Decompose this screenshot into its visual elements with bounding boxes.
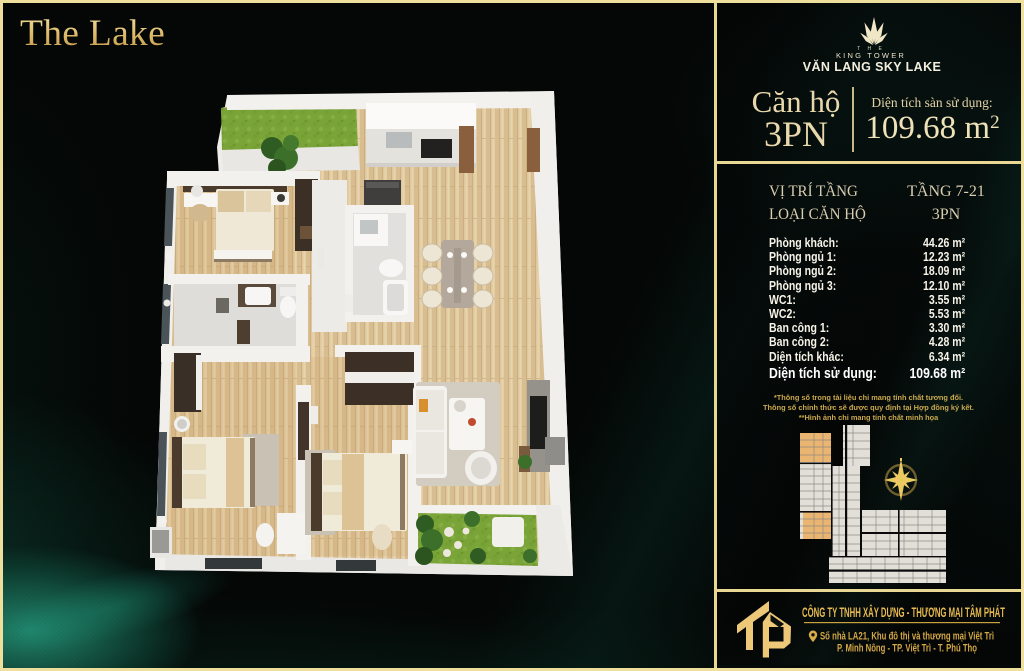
svg-text:Số nhà LA21, Khu đô thị và thư: Số nhà LA21, Khu đô thị và thương mại Vi… <box>820 631 994 643</box>
svg-text:CÔNG TY TNHH XÂY DỰNG - THƯƠNG: CÔNG TY TNHH XÂY DỰNG - THƯƠNG MẠI TÂM P… <box>802 605 1005 620</box>
svg-text:P. Minh Nông - TP. Việt Trì -: P. Minh Nông - TP. Việt Trì - T. Phú Thọ <box>837 643 977 655</box>
